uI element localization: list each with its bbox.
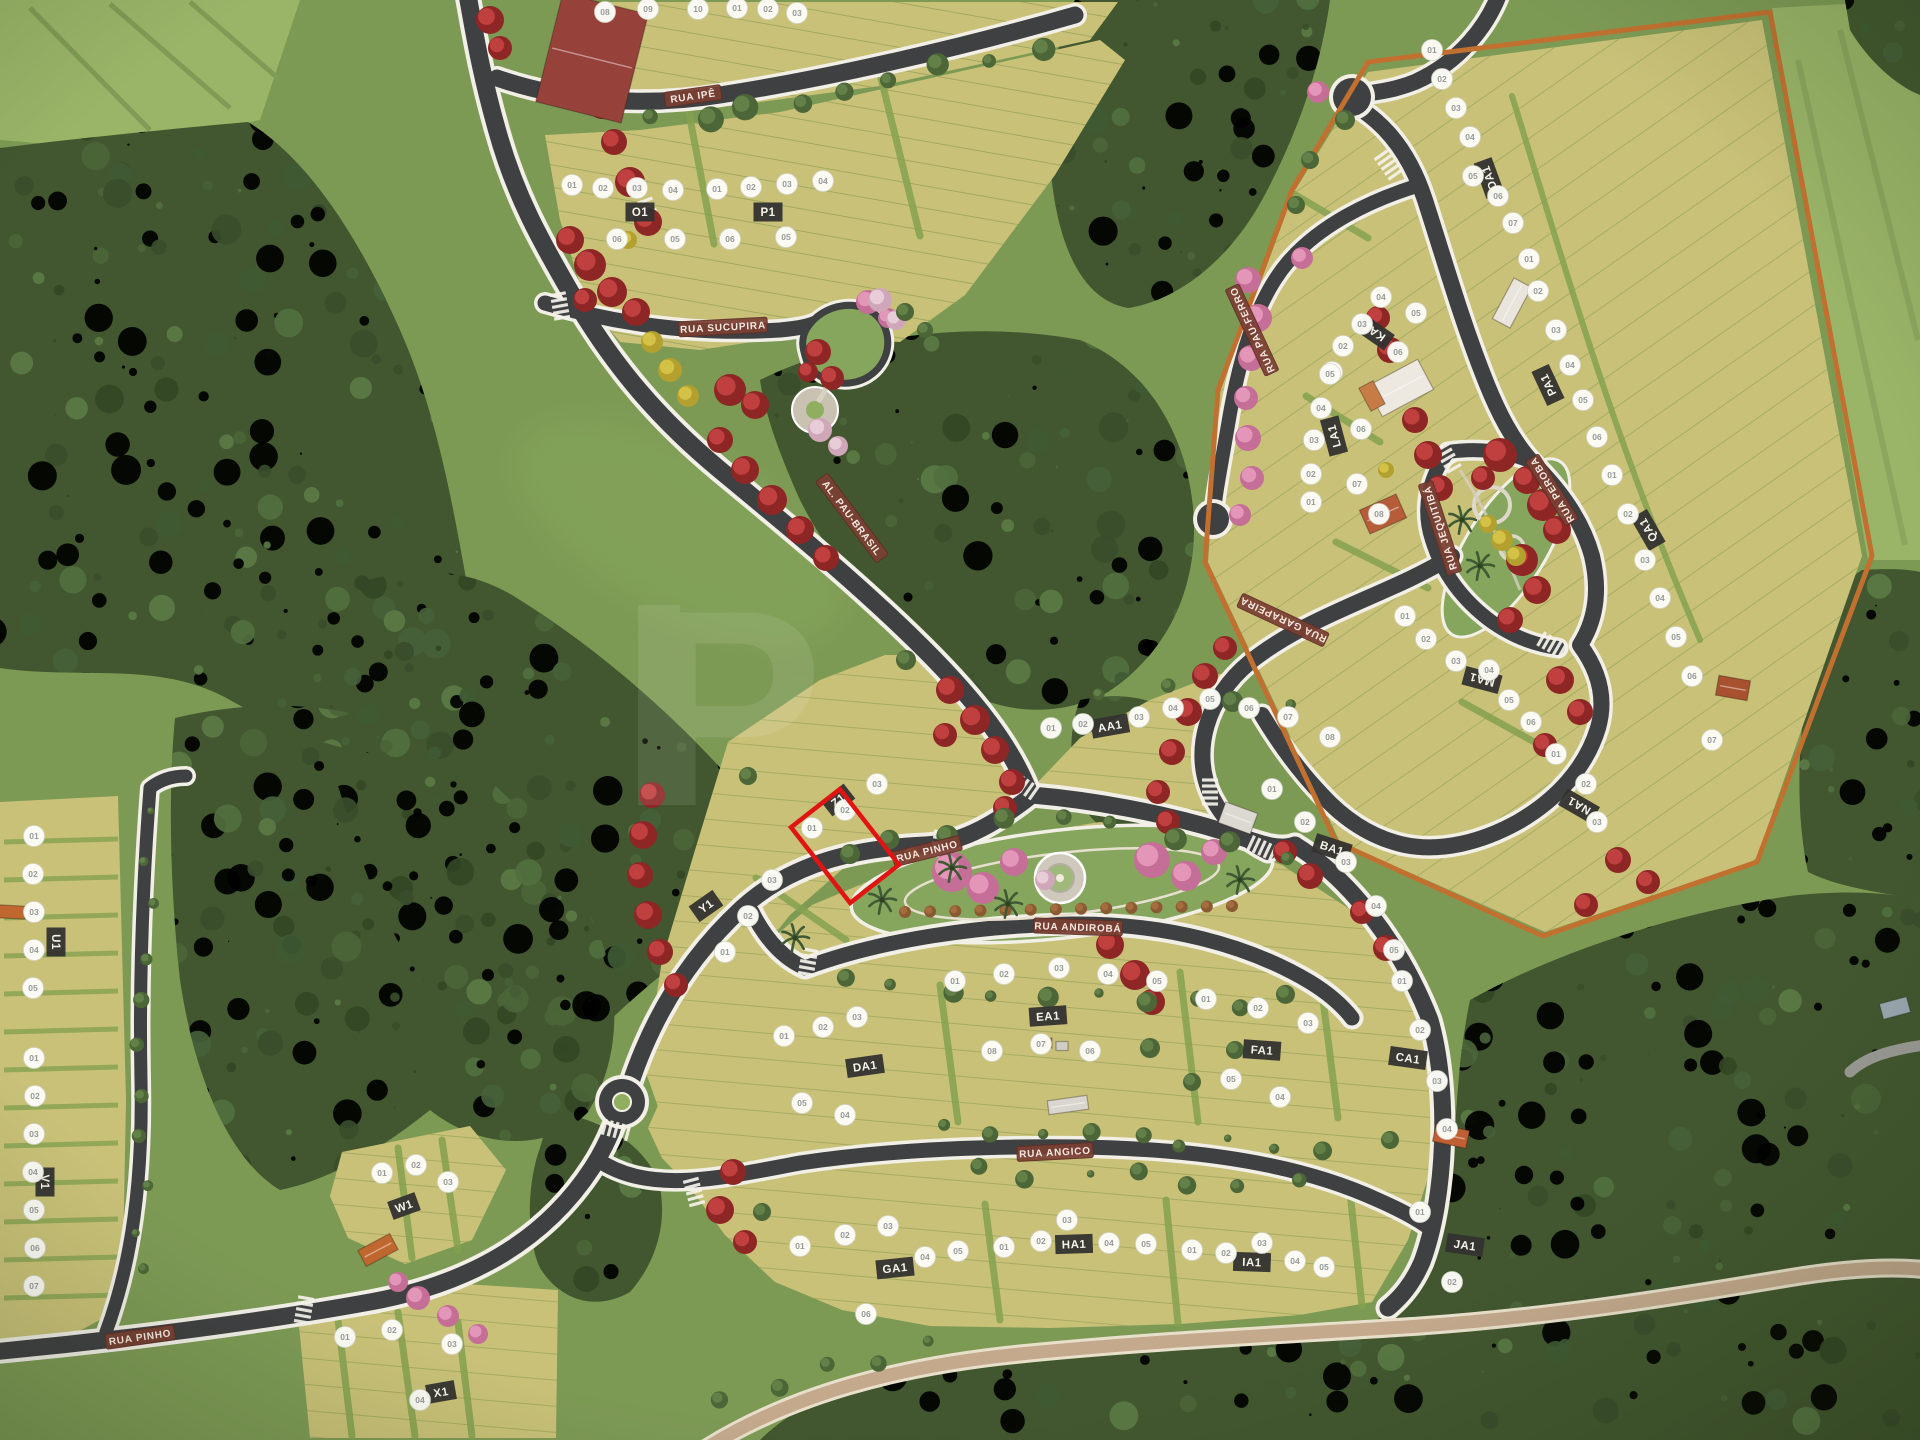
vignette-overlay — [0, 0, 1920, 1440]
subdivision-model-map: RUA IPÊRUA SUCUPIRAAL. PAU-BRASILRUA PAU… — [0, 0, 1920, 1440]
model-photo-stage: RUA IPÊRUA SUCUPIRAAL. PAU-BRASILRUA PAU… — [0, 0, 1920, 1440]
